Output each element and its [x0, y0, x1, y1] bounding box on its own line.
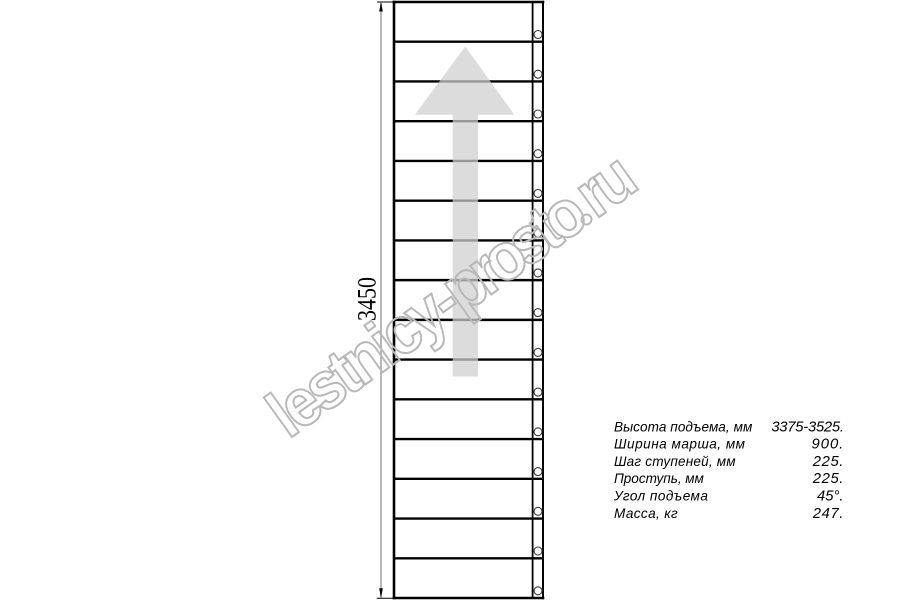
svg-text:Ширина марша, мм: Ширина марша, мм — [614, 437, 746, 452]
svg-text:247.: 247. — [812, 506, 844, 522]
svg-text:225.: 225. — [812, 454, 844, 470]
svg-text:3375-3525.: 3375-3525. — [771, 419, 843, 435]
svg-text:Масса, кг: Масса, кг — [614, 506, 678, 521]
svg-text:Шаг ступеней, мм: Шаг ступеней, мм — [614, 454, 736, 469]
svg-text:Высота подъема, мм: Высота подъема, мм — [614, 419, 753, 434]
svg-text:Проступь, мм: Проступь, мм — [614, 471, 705, 486]
svg-text:Угол подъема: Угол подъема — [613, 489, 708, 504]
svg-text:900.: 900. — [811, 437, 844, 453]
svg-text:45°.: 45°. — [817, 489, 844, 505]
svg-text:225.: 225. — [812, 471, 844, 487]
